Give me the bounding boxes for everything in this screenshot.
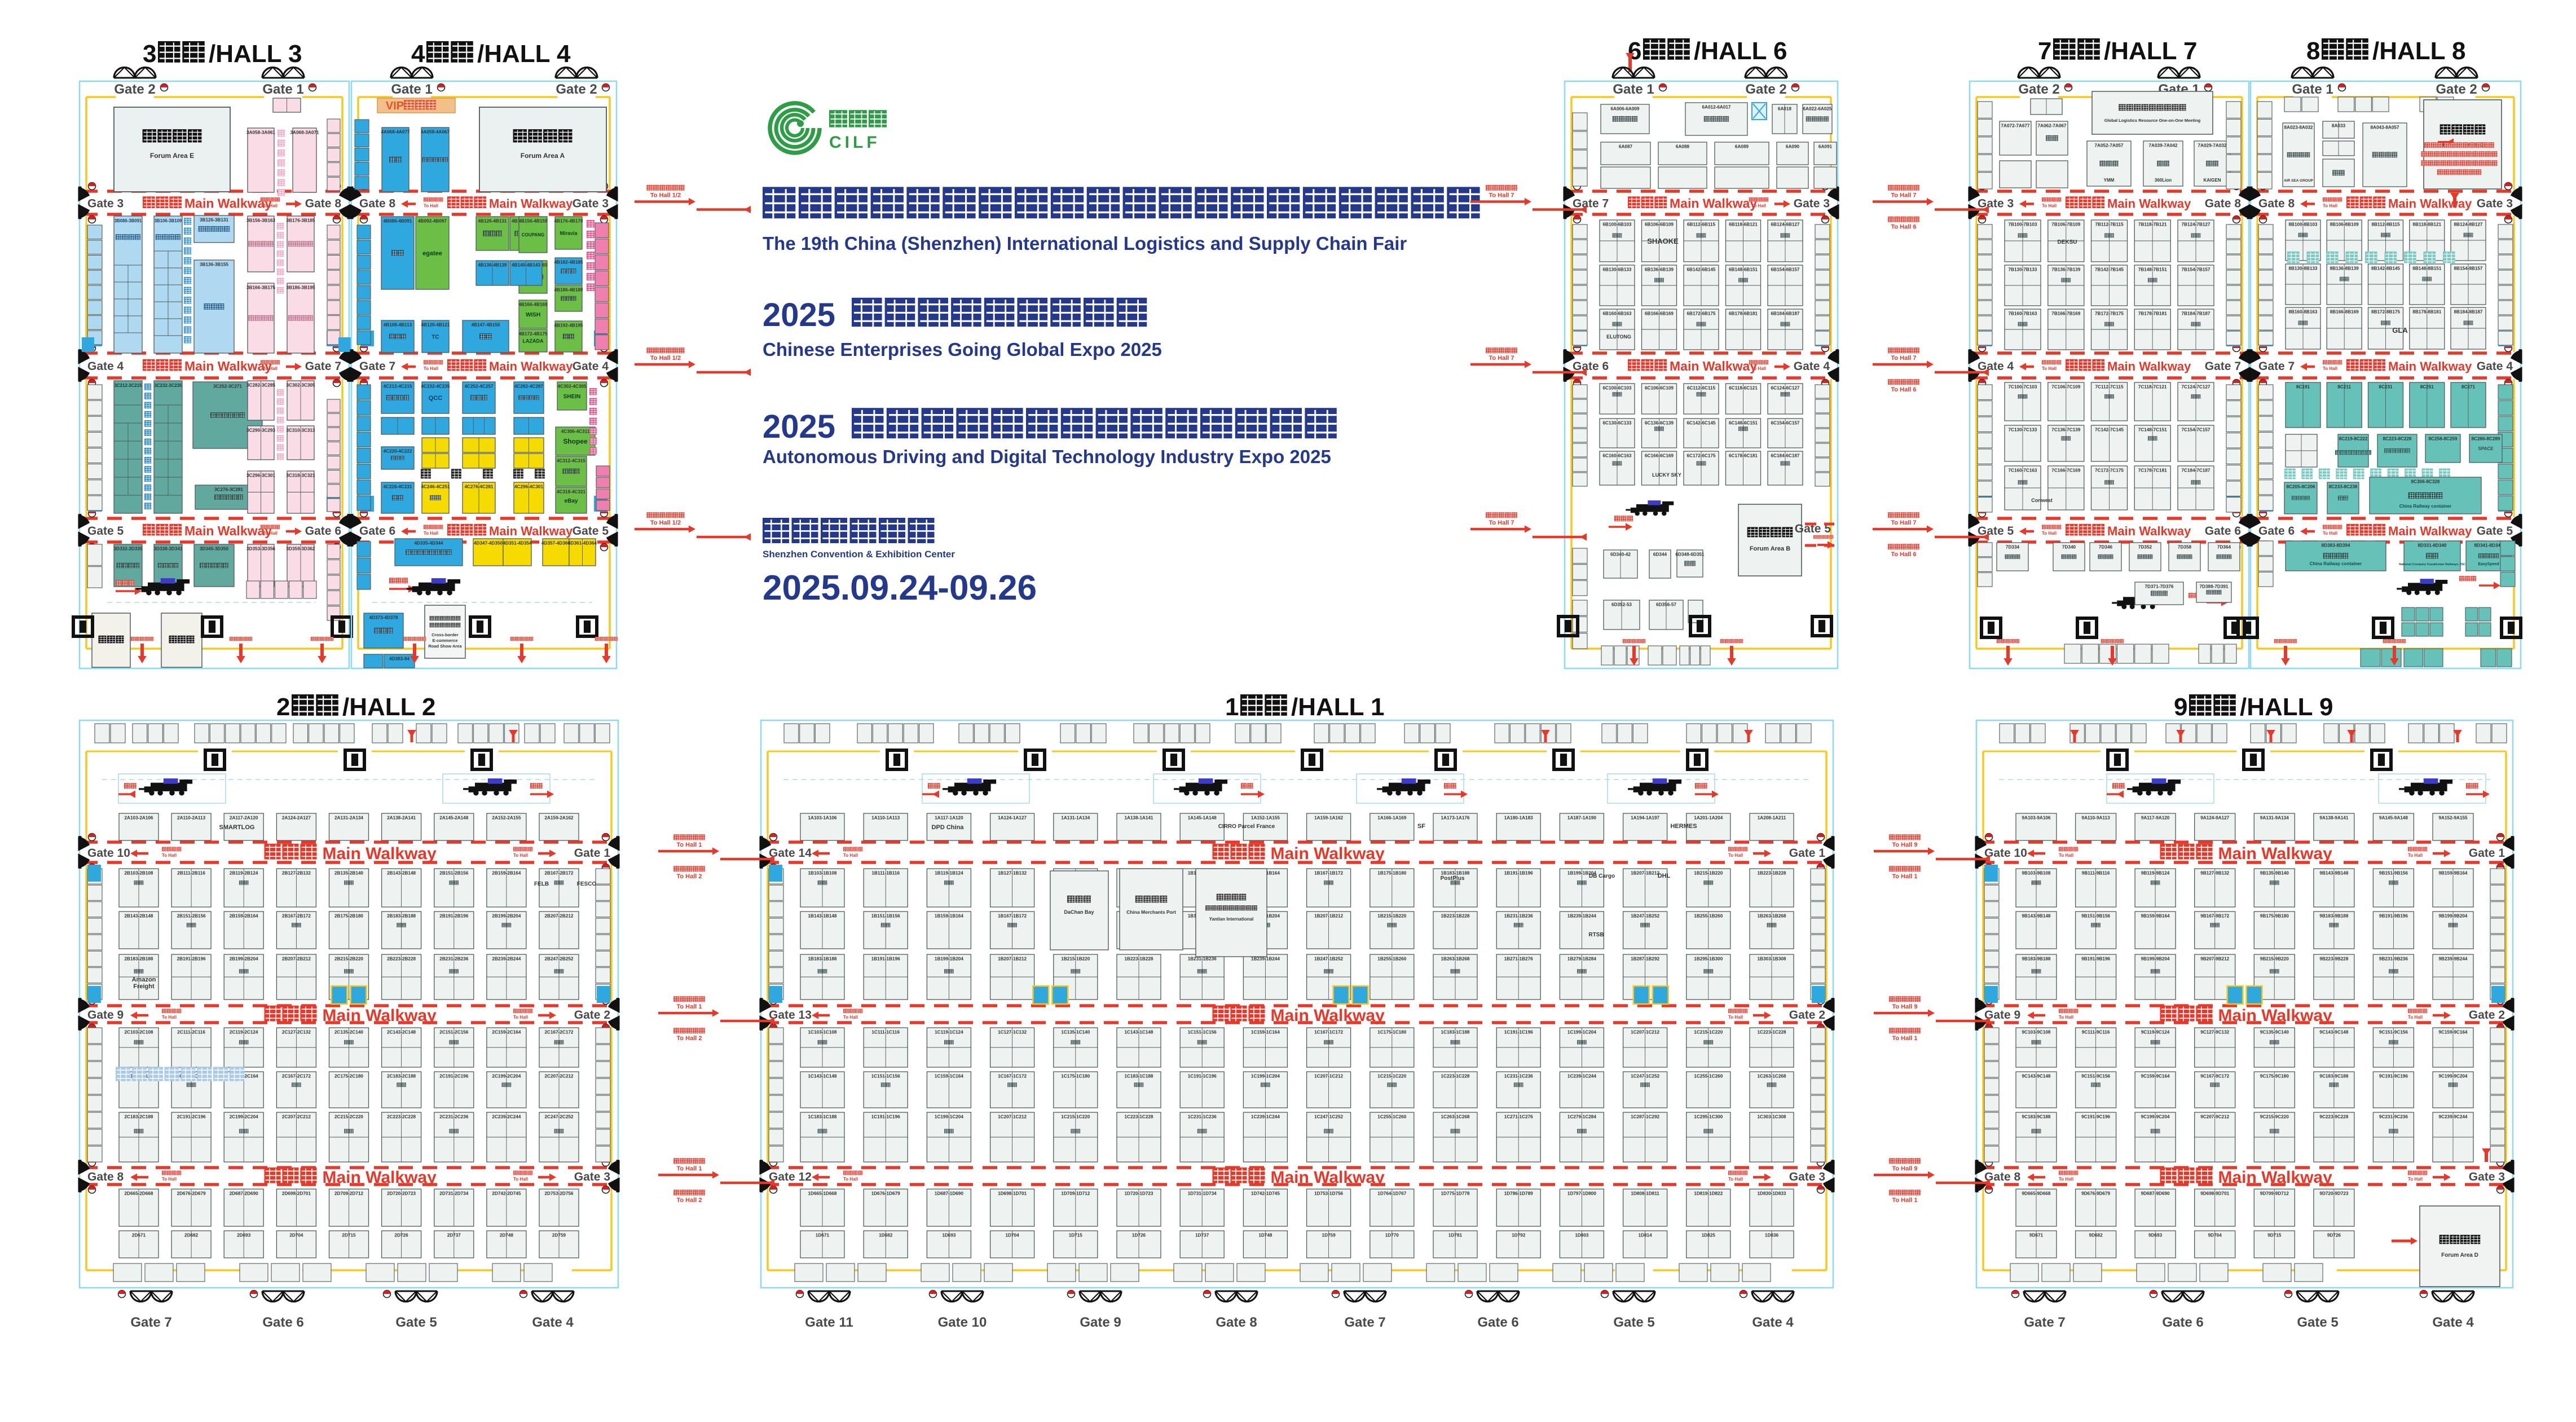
svg-text:360Lion: 360Lion bbox=[2155, 178, 2172, 183]
svg-text:To Hall 2: To Hall 2 bbox=[676, 1035, 702, 1042]
svg-text:7D364: 7D364 bbox=[2217, 545, 2231, 550]
svg-text:2A117-2A120: 2A117-2A120 bbox=[230, 816, 258, 821]
svg-text:To Hall 1: To Hall 1 bbox=[1892, 873, 1917, 880]
svg-text:1C247-1C252: 1C247-1C252 bbox=[1314, 1115, 1343, 1120]
svg-text:TC: TC bbox=[431, 334, 439, 340]
svg-text:7B100-7B103: 7B100-7B103 bbox=[2009, 222, 2037, 227]
svg-text:Gate 3: Gate 3 bbox=[1978, 197, 2014, 210]
svg-text:Main Walkway: Main Walkway bbox=[2218, 1168, 2333, 1187]
svg-text:3B126-3B131: 3B126-3B131 bbox=[200, 218, 228, 223]
svg-text:1B239-1B244: 1B239-1B244 bbox=[1567, 914, 1596, 919]
svg-text:1: 1 bbox=[1225, 693, 1239, 721]
svg-text:To Hall 1: To Hall 1 bbox=[1892, 1197, 1917, 1204]
svg-text:2B151-2B156: 2B151-2B156 bbox=[177, 914, 206, 919]
svg-text:2C167-2C172: 2C167-2C172 bbox=[282, 1074, 311, 1079]
svg-text:Main Walkway: Main Walkway bbox=[1670, 359, 1757, 373]
svg-text:/HALL 8: /HALL 8 bbox=[2372, 37, 2465, 65]
svg-text:6A006-6A009: 6A006-6A009 bbox=[1611, 107, 1640, 112]
svg-text:3D345-3D350: 3D345-3D350 bbox=[200, 547, 228, 552]
svg-text:1C167-1C172: 1C167-1C172 bbox=[998, 1074, 1027, 1079]
svg-text:1B127-1B132: 1B127-1B132 bbox=[998, 871, 1027, 876]
svg-text:1D753-1D756: 1D753-1D756 bbox=[1314, 1191, 1343, 1196]
svg-text:2B127-2B132: 2B127-2B132 bbox=[282, 871, 311, 876]
svg-text:6C148-6C151: 6C148-6C151 bbox=[1729, 421, 1758, 426]
svg-text:9D704: 9D704 bbox=[2208, 1233, 2222, 1238]
svg-text:1B279-1B284: 1B279-1B284 bbox=[1567, 957, 1596, 962]
svg-text:1C199-1C204: 1C199-1C204 bbox=[1251, 1074, 1280, 1079]
svg-text:SHAOKE: SHAOKE bbox=[1647, 237, 1679, 245]
svg-text:1B223-1B228: 1B223-1B228 bbox=[1758, 871, 1786, 876]
svg-text:1D665-1D668: 1D665-1D668 bbox=[808, 1191, 837, 1196]
svg-text:9B199-9B204: 9B199-9B204 bbox=[2141, 957, 2170, 962]
svg-text:Gate 8: Gate 8 bbox=[87, 1170, 124, 1183]
svg-text:9B183-9B188: 9B183-9B188 bbox=[2319, 914, 2348, 919]
svg-text:9C135-9C140: 9C135-9C140 bbox=[2260, 1030, 2289, 1035]
svg-text:6B124-6B127: 6B124-6B127 bbox=[1771, 222, 1800, 227]
svg-text:2: 2 bbox=[276, 693, 290, 721]
svg-text:1C287-1C292: 1C287-1C292 bbox=[1631, 1115, 1659, 1120]
svg-text:2C175-2C180: 2C175-2C180 bbox=[334, 1074, 363, 1079]
svg-text:YMM: YMM bbox=[2104, 178, 2115, 183]
svg-text:Gate 10: Gate 10 bbox=[938, 1315, 987, 1330]
svg-text:To Hall 1: To Hall 1 bbox=[676, 1003, 702, 1010]
svg-text:7C172-7C175: 7C172-7C175 bbox=[2095, 468, 2124, 473]
svg-text:Gate 3: Gate 3 bbox=[1789, 1170, 1825, 1183]
svg-text:9C143-9C148: 9C143-9C148 bbox=[2022, 1074, 2051, 1079]
svg-text:1C263-1C268: 1C263-1C268 bbox=[1758, 1074, 1786, 1079]
svg-text:7B154-7B157: 7B154-7B157 bbox=[2182, 267, 2210, 272]
svg-text:2C191-2C196: 2C191-2C196 bbox=[177, 1115, 206, 1120]
svg-text:To Hall: To Hall bbox=[162, 1177, 177, 1182]
svg-text:Main Walkway: Main Walkway bbox=[1271, 1006, 1385, 1025]
svg-text:To Hall: To Hall bbox=[513, 853, 528, 858]
svg-text:1B183-1B188: 1B183-1B188 bbox=[808, 957, 837, 962]
svg-text:To Hall 1: To Hall 1 bbox=[676, 842, 702, 848]
svg-text:8B148-8B151: 8B148-8B151 bbox=[2412, 266, 2441, 271]
svg-text:3C252-3C271: 3C252-3C271 bbox=[213, 384, 242, 389]
svg-text:Gate 7: Gate 7 bbox=[130, 1315, 171, 1330]
svg-text:2025: 2025 bbox=[763, 408, 835, 445]
svg-text:1C135-1C140: 1C135-1C140 bbox=[1061, 1030, 1090, 1035]
svg-text:Gate 3: Gate 3 bbox=[573, 197, 609, 210]
svg-text:8C231: 8C231 bbox=[2379, 385, 2393, 390]
svg-text:1D693: 1D693 bbox=[942, 1233, 956, 1238]
svg-text:1C199-1C204: 1C199-1C204 bbox=[1567, 1030, 1596, 1035]
svg-text:8B178-8B181: 8B178-8B181 bbox=[2412, 310, 2441, 315]
svg-text:1A201-1A204: 1A201-1A204 bbox=[1694, 816, 1723, 821]
svg-text:8B136-8B139: 8B136-8B139 bbox=[2330, 266, 2359, 271]
svg-text:1B263-1B268: 1B263-1B268 bbox=[1441, 957, 1470, 962]
svg-text:Main Walkway: Main Walkway bbox=[2218, 1006, 2333, 1025]
svg-text:7A029-7A032: 7A029-7A032 bbox=[2198, 143, 2227, 148]
svg-text:1B207-1B212: 1B207-1B212 bbox=[1314, 914, 1343, 919]
svg-text:2D715: 2D715 bbox=[342, 1233, 356, 1238]
svg-text:6B184-6B187: 6B184-6B187 bbox=[1771, 311, 1800, 316]
svg-text:1C255-1C260: 1C255-1C260 bbox=[1377, 1115, 1406, 1120]
svg-text:2C143-2C148: 2C143-2C148 bbox=[387, 1030, 416, 1035]
svg-text:1D759: 1D759 bbox=[1322, 1233, 1336, 1238]
svg-text:6C136-6C139: 6C136-6C139 bbox=[1645, 421, 1674, 426]
svg-text:1D709-1D712: 1D709-1D712 bbox=[1061, 1191, 1090, 1196]
svg-text:Main Walkway: Main Walkway bbox=[184, 523, 272, 538]
svg-text:To Hall: To Hall bbox=[1751, 204, 1766, 209]
svg-text:1B167-1B172: 1B167-1B172 bbox=[998, 914, 1027, 919]
svg-text:1C175-1C180: 1C175-1C180 bbox=[1377, 1030, 1406, 1035]
svg-text:2C199-2C204: 2C199-2C204 bbox=[492, 1074, 521, 1079]
svg-text:9B215-9B220: 9B215-9B220 bbox=[2260, 957, 2289, 962]
svg-text:1C119-1C124: 1C119-1C124 bbox=[935, 1030, 963, 1035]
svg-text:Gate 8: Gate 8 bbox=[2205, 197, 2242, 210]
svg-text:To Hall: To Hall bbox=[843, 1015, 858, 1020]
svg-text:Forum Area B: Forum Area B bbox=[1750, 545, 1790, 552]
svg-text:To Hall: To Hall bbox=[1728, 1015, 1743, 1020]
svg-text:1D671: 1D671 bbox=[816, 1233, 830, 1238]
svg-text:RTSB: RTSB bbox=[1588, 932, 1604, 938]
svg-text:1A110-1A113: 1A110-1A113 bbox=[871, 816, 900, 821]
svg-text:Gate 3: Gate 3 bbox=[2477, 197, 2513, 210]
svg-text:1B271-1B276: 1B271-1B276 bbox=[1504, 957, 1533, 962]
svg-text:4C318-4C321: 4C318-4C321 bbox=[557, 490, 585, 495]
svg-text:4B126-4B131: 4B126-4B131 bbox=[478, 219, 507, 224]
svg-text:Gate 10: Gate 10 bbox=[87, 847, 130, 860]
svg-text:6C184-6C187: 6C184-6C187 bbox=[1771, 454, 1800, 459]
svg-text:To Hall 7: To Hall 7 bbox=[1891, 192, 1916, 199]
svg-text:To Hall 6: To Hall 6 bbox=[1891, 386, 1916, 393]
svg-text:Freight: Freight bbox=[133, 983, 155, 990]
svg-text:1C199-1C204: 1C199-1C204 bbox=[935, 1115, 963, 1120]
svg-text:6B118-6B121: 6B118-6B121 bbox=[1729, 222, 1758, 227]
svg-text:1C223-1C228: 1C223-1C228 bbox=[1125, 1115, 1153, 1120]
svg-text:Gate 4: Gate 4 bbox=[573, 360, 609, 373]
svg-text:7B130-7B133: 7B130-7B133 bbox=[2009, 267, 2037, 272]
svg-text:1C143-1C148: 1C143-1C148 bbox=[808, 1074, 837, 1079]
svg-text:Forum Area E: Forum Area E bbox=[150, 152, 194, 160]
svg-text:9B207-9B212: 9B207-9B212 bbox=[2200, 957, 2229, 962]
svg-text:2C167-2C172: 2C167-2C172 bbox=[545, 1030, 574, 1035]
svg-text:1C191-1C196: 1C191-1C196 bbox=[871, 1115, 900, 1120]
svg-text:To Hall: To Hall bbox=[2042, 366, 2057, 371]
svg-text:Gate 2: Gate 2 bbox=[2018, 82, 2059, 97]
svg-text:Gate 1: Gate 1 bbox=[391, 82, 432, 97]
svg-text:2D709-2D712: 2D709-2D712 bbox=[334, 1191, 363, 1196]
svg-text:To Hall: To Hall bbox=[2042, 531, 2057, 536]
svg-text:6A012-6A017: 6A012-6A017 bbox=[1702, 105, 1731, 110]
svg-text:4B186-4B189: 4B186-4B189 bbox=[554, 288, 583, 293]
svg-text:3C212-3C215: 3C212-3C215 bbox=[115, 383, 142, 388]
svg-text:1B247-1B252: 1B247-1B252 bbox=[1314, 957, 1343, 962]
svg-text:6B154-6B157: 6B154-6B157 bbox=[1771, 267, 1800, 272]
svg-text:2A145-2A148: 2A145-2A148 bbox=[439, 816, 468, 821]
svg-text:Gate 8: Gate 8 bbox=[359, 197, 396, 210]
svg-text:9C127-9C132: 9C127-9C132 bbox=[2200, 1030, 2229, 1035]
svg-text:To Hall: To Hall bbox=[2323, 366, 2337, 371]
svg-text:Gate 4: Gate 4 bbox=[2432, 1315, 2474, 1330]
svg-text:DB Cargo: DB Cargo bbox=[1589, 873, 1615, 879]
svg-text:6C172-6C175: 6C172-6C175 bbox=[1687, 454, 1716, 459]
svg-text:9A124-9A127: 9A124-9A127 bbox=[2200, 816, 2229, 821]
svg-text:1C255-1C260: 1C255-1C260 bbox=[1694, 1074, 1723, 1079]
svg-text:9B183-9B188: 9B183-9B188 bbox=[2022, 957, 2051, 962]
svg-text:9B127-9B132: 9B127-9B132 bbox=[2200, 871, 2229, 876]
svg-text:1D726: 1D726 bbox=[1132, 1233, 1146, 1238]
svg-text:DHL: DHL bbox=[1658, 873, 1671, 879]
svg-text:Main Walkway: Main Walkway bbox=[2107, 524, 2191, 538]
svg-text:Gate 9: Gate 9 bbox=[87, 1009, 124, 1022]
svg-text:8C219-8C222: 8C219-8C222 bbox=[2339, 437, 2368, 442]
svg-text:1A173-1A176: 1A173-1A176 bbox=[1441, 816, 1470, 821]
svg-text:Gate 2: Gate 2 bbox=[1745, 82, 1786, 97]
svg-text:7B112-7B115: 7B112-7B115 bbox=[2095, 222, 2124, 227]
svg-text:1C223-1C228: 1C223-1C228 bbox=[1758, 1030, 1786, 1035]
svg-text:8A033: 8A033 bbox=[2332, 124, 2346, 129]
svg-text:To Hall: To Hall bbox=[513, 1177, 528, 1182]
svg-text:1A166-1A169: 1A166-1A169 bbox=[1377, 816, 1406, 821]
svg-text:1D781: 1D781 bbox=[1448, 1233, 1463, 1238]
svg-text:9C159-9C164: 9C159-9C164 bbox=[2141, 1074, 2170, 1079]
svg-text:Gate 5: Gate 5 bbox=[2297, 1315, 2338, 1330]
svg-text:8B166-8B169: 8B166-8B169 bbox=[2330, 310, 2359, 315]
svg-text:Main Walkway: Main Walkway bbox=[2388, 524, 2472, 538]
svg-text:Gate 5: Gate 5 bbox=[395, 1315, 437, 1330]
svg-text:Gate 1: Gate 1 bbox=[1789, 847, 1826, 860]
svg-text:Gate 1: Gate 1 bbox=[2469, 847, 2505, 860]
svg-text:9B167-9B172: 9B167-9B172 bbox=[2200, 914, 2229, 919]
svg-text:2C239-2C244: 2C239-2C244 bbox=[492, 1115, 521, 1120]
svg-text:Gate 11: Gate 11 bbox=[805, 1315, 853, 1330]
svg-text:2B143-2B148: 2B143-2B148 bbox=[387, 871, 416, 876]
svg-text:6C112-6C115: 6C112-6C115 bbox=[1687, 386, 1716, 391]
svg-text:3D359-3D362: 3D359-3D362 bbox=[287, 547, 315, 552]
svg-text:To Hall: To Hall bbox=[2408, 1015, 2423, 1020]
svg-text:7B142-7B145: 7B142-7B145 bbox=[2095, 267, 2124, 272]
svg-text:7B148-7B151: 7B148-7B151 bbox=[2138, 267, 2167, 272]
svg-text:1C239-1C244: 1C239-1C244 bbox=[1567, 1074, 1596, 1079]
svg-text:9B199-9B204: 9B199-9B204 bbox=[2439, 914, 2468, 919]
svg-text:3B106-3B109: 3B106-3B109 bbox=[155, 218, 182, 223]
svg-text:2B199-2B204: 2B199-2B204 bbox=[492, 914, 521, 919]
svg-text:Autonomous Driving and Digital: Autonomous Driving and Digital Technolog… bbox=[763, 446, 1331, 467]
svg-text:4C276-4C281: 4C276-4C281 bbox=[465, 485, 494, 490]
svg-text:To Hall: To Hall bbox=[263, 366, 278, 371]
svg-text:8A043-8A057: 8A043-8A057 bbox=[2371, 125, 2399, 130]
svg-text:4: 4 bbox=[411, 40, 425, 68]
svg-text:DaChan Bay: DaChan Bay bbox=[1064, 909, 1094, 915]
svg-text:4C232-4C235: 4C232-4C235 bbox=[421, 384, 450, 389]
svg-text:6A089: 6A089 bbox=[1735, 144, 1749, 149]
svg-text:1B231-1B236: 1B231-1B236 bbox=[1504, 914, 1533, 919]
svg-text:Miravia: Miravia bbox=[560, 230, 578, 236]
svg-text:2C191-2C196: 2C191-2C196 bbox=[439, 1074, 468, 1079]
svg-text:8B106-8B109: 8B106-8B109 bbox=[2330, 222, 2359, 227]
svg-text:9C159-9C164: 9C159-9C164 bbox=[2439, 1030, 2468, 1035]
svg-text:2B191-2B196: 2B191-2B196 bbox=[177, 957, 206, 962]
svg-text:1C183-1C188: 1C183-1C188 bbox=[808, 1115, 837, 1120]
svg-text:2C103-2C108: 2C103-2C108 bbox=[125, 1030, 153, 1035]
svg-text:9: 9 bbox=[2174, 693, 2187, 721]
svg-text:6D344: 6D344 bbox=[1653, 552, 1667, 557]
svg-text:8B160-8B163: 8B160-8B163 bbox=[2289, 310, 2318, 315]
svg-text:2B119-2B124: 2B119-2B124 bbox=[230, 871, 258, 876]
svg-text:To Hall 7: To Hall 7 bbox=[1489, 520, 1514, 526]
svg-text:Gate 2: Gate 2 bbox=[2469, 1009, 2505, 1022]
svg-text:Gate 10: Gate 10 bbox=[1984, 847, 2027, 860]
svg-text:To Hall 6: To Hall 6 bbox=[1891, 551, 1916, 558]
svg-text:4A058-4A067: 4A058-4A067 bbox=[421, 130, 450, 135]
svg-text:9C239-9C244: 9C239-9C244 bbox=[2439, 1115, 2468, 1120]
svg-text:2B103-2B108: 2B103-2B108 bbox=[125, 871, 153, 876]
svg-text:Gate 1: Gate 1 bbox=[1613, 82, 1654, 97]
svg-text:2A138-2A141: 2A138-2A141 bbox=[387, 816, 416, 821]
svg-text:SF: SF bbox=[1417, 823, 1425, 830]
svg-text:1B231-1B236: 1B231-1B236 bbox=[1188, 957, 1217, 962]
svg-text:Gate 14: Gate 14 bbox=[769, 847, 812, 860]
svg-text:7B106-7B109: 7B106-7B109 bbox=[2051, 222, 2080, 227]
svg-text:2D671: 2D671 bbox=[132, 1233, 146, 1238]
svg-text:7B166-7B169: 7B166-7B169 bbox=[2051, 311, 2080, 316]
svg-text:Main Walkway: Main Walkway bbox=[1670, 196, 1757, 211]
svg-text:4C246-4C251: 4C246-4C251 bbox=[421, 485, 450, 490]
svg-text:9A145-9A148: 9A145-9A148 bbox=[2379, 816, 2408, 821]
svg-text:To Hall: To Hall bbox=[2042, 204, 2057, 209]
svg-text:9A110-9A113: 9A110-9A113 bbox=[2082, 816, 2111, 821]
svg-text:9C175-9C180: 9C175-9C180 bbox=[2260, 1074, 2289, 1079]
svg-text:Gate 1: Gate 1 bbox=[2292, 82, 2333, 97]
svg-text:2D742-2D745: 2D742-2D745 bbox=[492, 1191, 521, 1196]
svg-text:1C159-1C164: 1C159-1C164 bbox=[1251, 1030, 1280, 1035]
svg-text:9B151-9B156: 9B151-9B156 bbox=[2081, 914, 2110, 919]
svg-text:1C215-1C220: 1C215-1C220 bbox=[1377, 1074, 1406, 1079]
svg-text:2B159-2B164: 2B159-2B164 bbox=[230, 914, 258, 919]
svg-text:9C207-9C212: 9C207-9C212 bbox=[2200, 1115, 2229, 1120]
svg-text:Gate 8: Gate 8 bbox=[305, 197, 342, 210]
svg-text:4C252-4C257: 4C252-4C257 bbox=[465, 384, 494, 389]
svg-text:6D348-6D351: 6D348-6D351 bbox=[1676, 552, 1705, 557]
svg-text:8C205-8C206: 8C205-8C206 bbox=[2287, 485, 2315, 490]
svg-text:7B172-7B175: 7B172-7B175 bbox=[2095, 311, 2124, 316]
svg-text:1B215-1B220: 1B215-1B220 bbox=[1694, 871, 1723, 876]
svg-text:1D836: 1D836 bbox=[1765, 1233, 1779, 1238]
svg-text:2B207-2B212: 2B207-2B212 bbox=[545, 914, 574, 919]
svg-text:To Hall 9: To Hall 9 bbox=[1892, 842, 1917, 848]
svg-text:7C124-7C127: 7C124-7C127 bbox=[2182, 385, 2210, 390]
svg-text:3D332-3D335: 3D332-3D335 bbox=[114, 547, 143, 552]
svg-text:9B111-9B116: 9B111-9B116 bbox=[2082, 871, 2110, 876]
svg-text:3B166-3B175: 3B166-3B175 bbox=[246, 285, 275, 290]
svg-text:Gate 7: Gate 7 bbox=[2205, 360, 2241, 373]
svg-text:3D338-3D341: 3D338-3D341 bbox=[154, 547, 183, 552]
svg-text:6B112-6B115: 6B112-6B115 bbox=[1687, 222, 1716, 227]
svg-text:2C207-2C212: 2C207-2C212 bbox=[545, 1074, 574, 1079]
svg-text:7B136-7B139: 7B136-7B139 bbox=[2051, 267, 2080, 272]
svg-text:1A208-1A211: 1A208-1A211 bbox=[1758, 816, 1786, 821]
svg-text:1B303-1B308: 1B303-1B308 bbox=[1758, 957, 1786, 962]
svg-text:1C215-1C220: 1C215-1C220 bbox=[1694, 1030, 1723, 1035]
svg-text:9C111-9C116: 9C111-9C116 bbox=[2082, 1030, 2110, 1035]
svg-text:AIR SEA GROUP: AIR SEA GROUP bbox=[2284, 179, 2313, 183]
svg-text:9C183-9C188: 9C183-9C188 bbox=[2319, 1074, 2348, 1079]
svg-text:1B207-1B212: 1B207-1B212 bbox=[1631, 871, 1659, 876]
svg-text:2C215-2C220: 2C215-2C220 bbox=[334, 1115, 363, 1120]
svg-text:8B184-8B187: 8B184-8B187 bbox=[2454, 310, 2483, 315]
svg-text:To Hall: To Hall bbox=[424, 366, 438, 371]
svg-text:1B247-1B252: 1B247-1B252 bbox=[1631, 914, 1659, 919]
svg-text:To Hall: To Hall bbox=[1728, 1177, 1743, 1182]
svg-text:7D352: 7D352 bbox=[2138, 545, 2152, 550]
svg-text:6C154-6C157: 6C154-6C157 bbox=[1771, 421, 1800, 426]
svg-text:4C212-4C215: 4C212-4C215 bbox=[384, 384, 412, 389]
svg-text:2B215-2B220: 2B215-2B220 bbox=[334, 957, 363, 962]
svg-text:8C191: 8C191 bbox=[2296, 385, 2310, 390]
svg-text:LAZADA: LAZADA bbox=[523, 338, 544, 344]
svg-text:/HALL 7: /HALL 7 bbox=[2104, 37, 2197, 65]
svg-text:FELB: FELB bbox=[534, 881, 549, 887]
svg-text:3B186-3B195: 3B186-3B195 bbox=[287, 285, 315, 290]
svg-text:1C263-1C268: 1C263-1C268 bbox=[1441, 1115, 1470, 1120]
svg-text:Forum Area D: Forum Area D bbox=[2441, 1252, 2478, 1258]
svg-text:1B295-1B300: 1B295-1B300 bbox=[1694, 957, 1723, 962]
svg-text:9C151-9C156: 9C151-9C156 bbox=[2081, 1074, 2110, 1079]
svg-text:2B159-2B164: 2B159-2B164 bbox=[492, 871, 521, 876]
svg-text:To Hall 2: To Hall 2 bbox=[676, 1197, 702, 1204]
svg-text:1A152-1A155: 1A152-1A155 bbox=[1251, 816, 1280, 821]
svg-text:8C211: 8C211 bbox=[2337, 385, 2351, 390]
svg-text:8B118-8B121: 8B118-8B121 bbox=[2413, 222, 2442, 227]
svg-text:6D356-57: 6D356-57 bbox=[1656, 602, 1676, 607]
svg-text:1C103-1C108: 1C103-1C108 bbox=[808, 1030, 837, 1035]
svg-text:9B175-9B180: 9B175-9B180 bbox=[2260, 914, 2289, 919]
svg-text:2C223-2C228: 2C223-2C228 bbox=[387, 1115, 416, 1120]
svg-text:4D357-4D360: 4D357-4D360 bbox=[541, 541, 570, 546]
svg-text:1B143-1B148: 1B143-1B148 bbox=[808, 914, 837, 919]
svg-text:6C130-6C133: 6C130-6C133 bbox=[1603, 421, 1632, 426]
svg-text:1A187-1A190: 1A187-1A190 bbox=[1567, 816, 1596, 821]
svg-text:Gate 2: Gate 2 bbox=[2436, 82, 2477, 97]
svg-text:1D720-1D723: 1D720-1D723 bbox=[1125, 1191, 1153, 1196]
svg-text:9B159-9B164: 9B159-9B164 bbox=[2141, 914, 2170, 919]
svg-text:Conwest: Conwest bbox=[2031, 498, 2053, 503]
svg-text:9A103-9A106: 9A103-9A106 bbox=[2022, 816, 2051, 821]
svg-text:Gate 7: Gate 7 bbox=[305, 360, 341, 373]
svg-text:Gate 8: Gate 8 bbox=[1216, 1315, 1257, 1330]
svg-text:8C271: 8C271 bbox=[2461, 385, 2476, 390]
svg-text:1A117-1A120: 1A117-1A120 bbox=[935, 816, 963, 821]
svg-text:4D335-4D344: 4D335-4D344 bbox=[415, 541, 443, 546]
svg-text:3A068-3A071: 3A068-3A071 bbox=[290, 130, 319, 135]
svg-text:Gate 9: Gate 9 bbox=[1080, 1315, 1121, 1330]
svg-text:To Hall 7: To Hall 7 bbox=[1489, 192, 1514, 199]
svg-text:1D704: 1D704 bbox=[1006, 1233, 1020, 1238]
svg-text:1B207-1B212: 1B207-1B212 bbox=[998, 957, 1027, 962]
svg-text:CIRRO Parcel France: CIRRO Parcel France bbox=[1218, 824, 1275, 830]
svg-text:9C191-9C196: 9C191-9C196 bbox=[2081, 1115, 2110, 1120]
svg-text:Main Walkway: Main Walkway bbox=[2388, 197, 2472, 211]
svg-text:Gate 3: Gate 3 bbox=[574, 1170, 610, 1183]
svg-text:1B159-1B164: 1B159-1B164 bbox=[935, 914, 963, 919]
svg-text:Gate 6: Gate 6 bbox=[2162, 1315, 2203, 1330]
svg-text:To Hall: To Hall bbox=[513, 1015, 528, 1020]
svg-text:2B167-2B172: 2B167-2B172 bbox=[282, 914, 311, 919]
svg-text:/HALL 4: /HALL 4 bbox=[477, 40, 571, 68]
svg-text:1D731-1D734: 1D731-1D734 bbox=[1188, 1191, 1217, 1196]
svg-text:9D698-9D701: 9D698-9D701 bbox=[2200, 1191, 2229, 1196]
svg-text:9C199-9C204: 9C199-9C204 bbox=[2439, 1074, 2468, 1079]
svg-text:2A103-2A106: 2A103-2A106 bbox=[125, 816, 153, 821]
svg-text:3C282-3C285: 3C282-3C285 bbox=[246, 383, 275, 388]
svg-text:Gate 6: Gate 6 bbox=[1573, 360, 1609, 373]
svg-text:1D698-1D701: 1D698-1D701 bbox=[998, 1191, 1027, 1196]
svg-text:To Hall: To Hall bbox=[2323, 204, 2337, 209]
svg-text:Gate 6: Gate 6 bbox=[2205, 525, 2241, 538]
